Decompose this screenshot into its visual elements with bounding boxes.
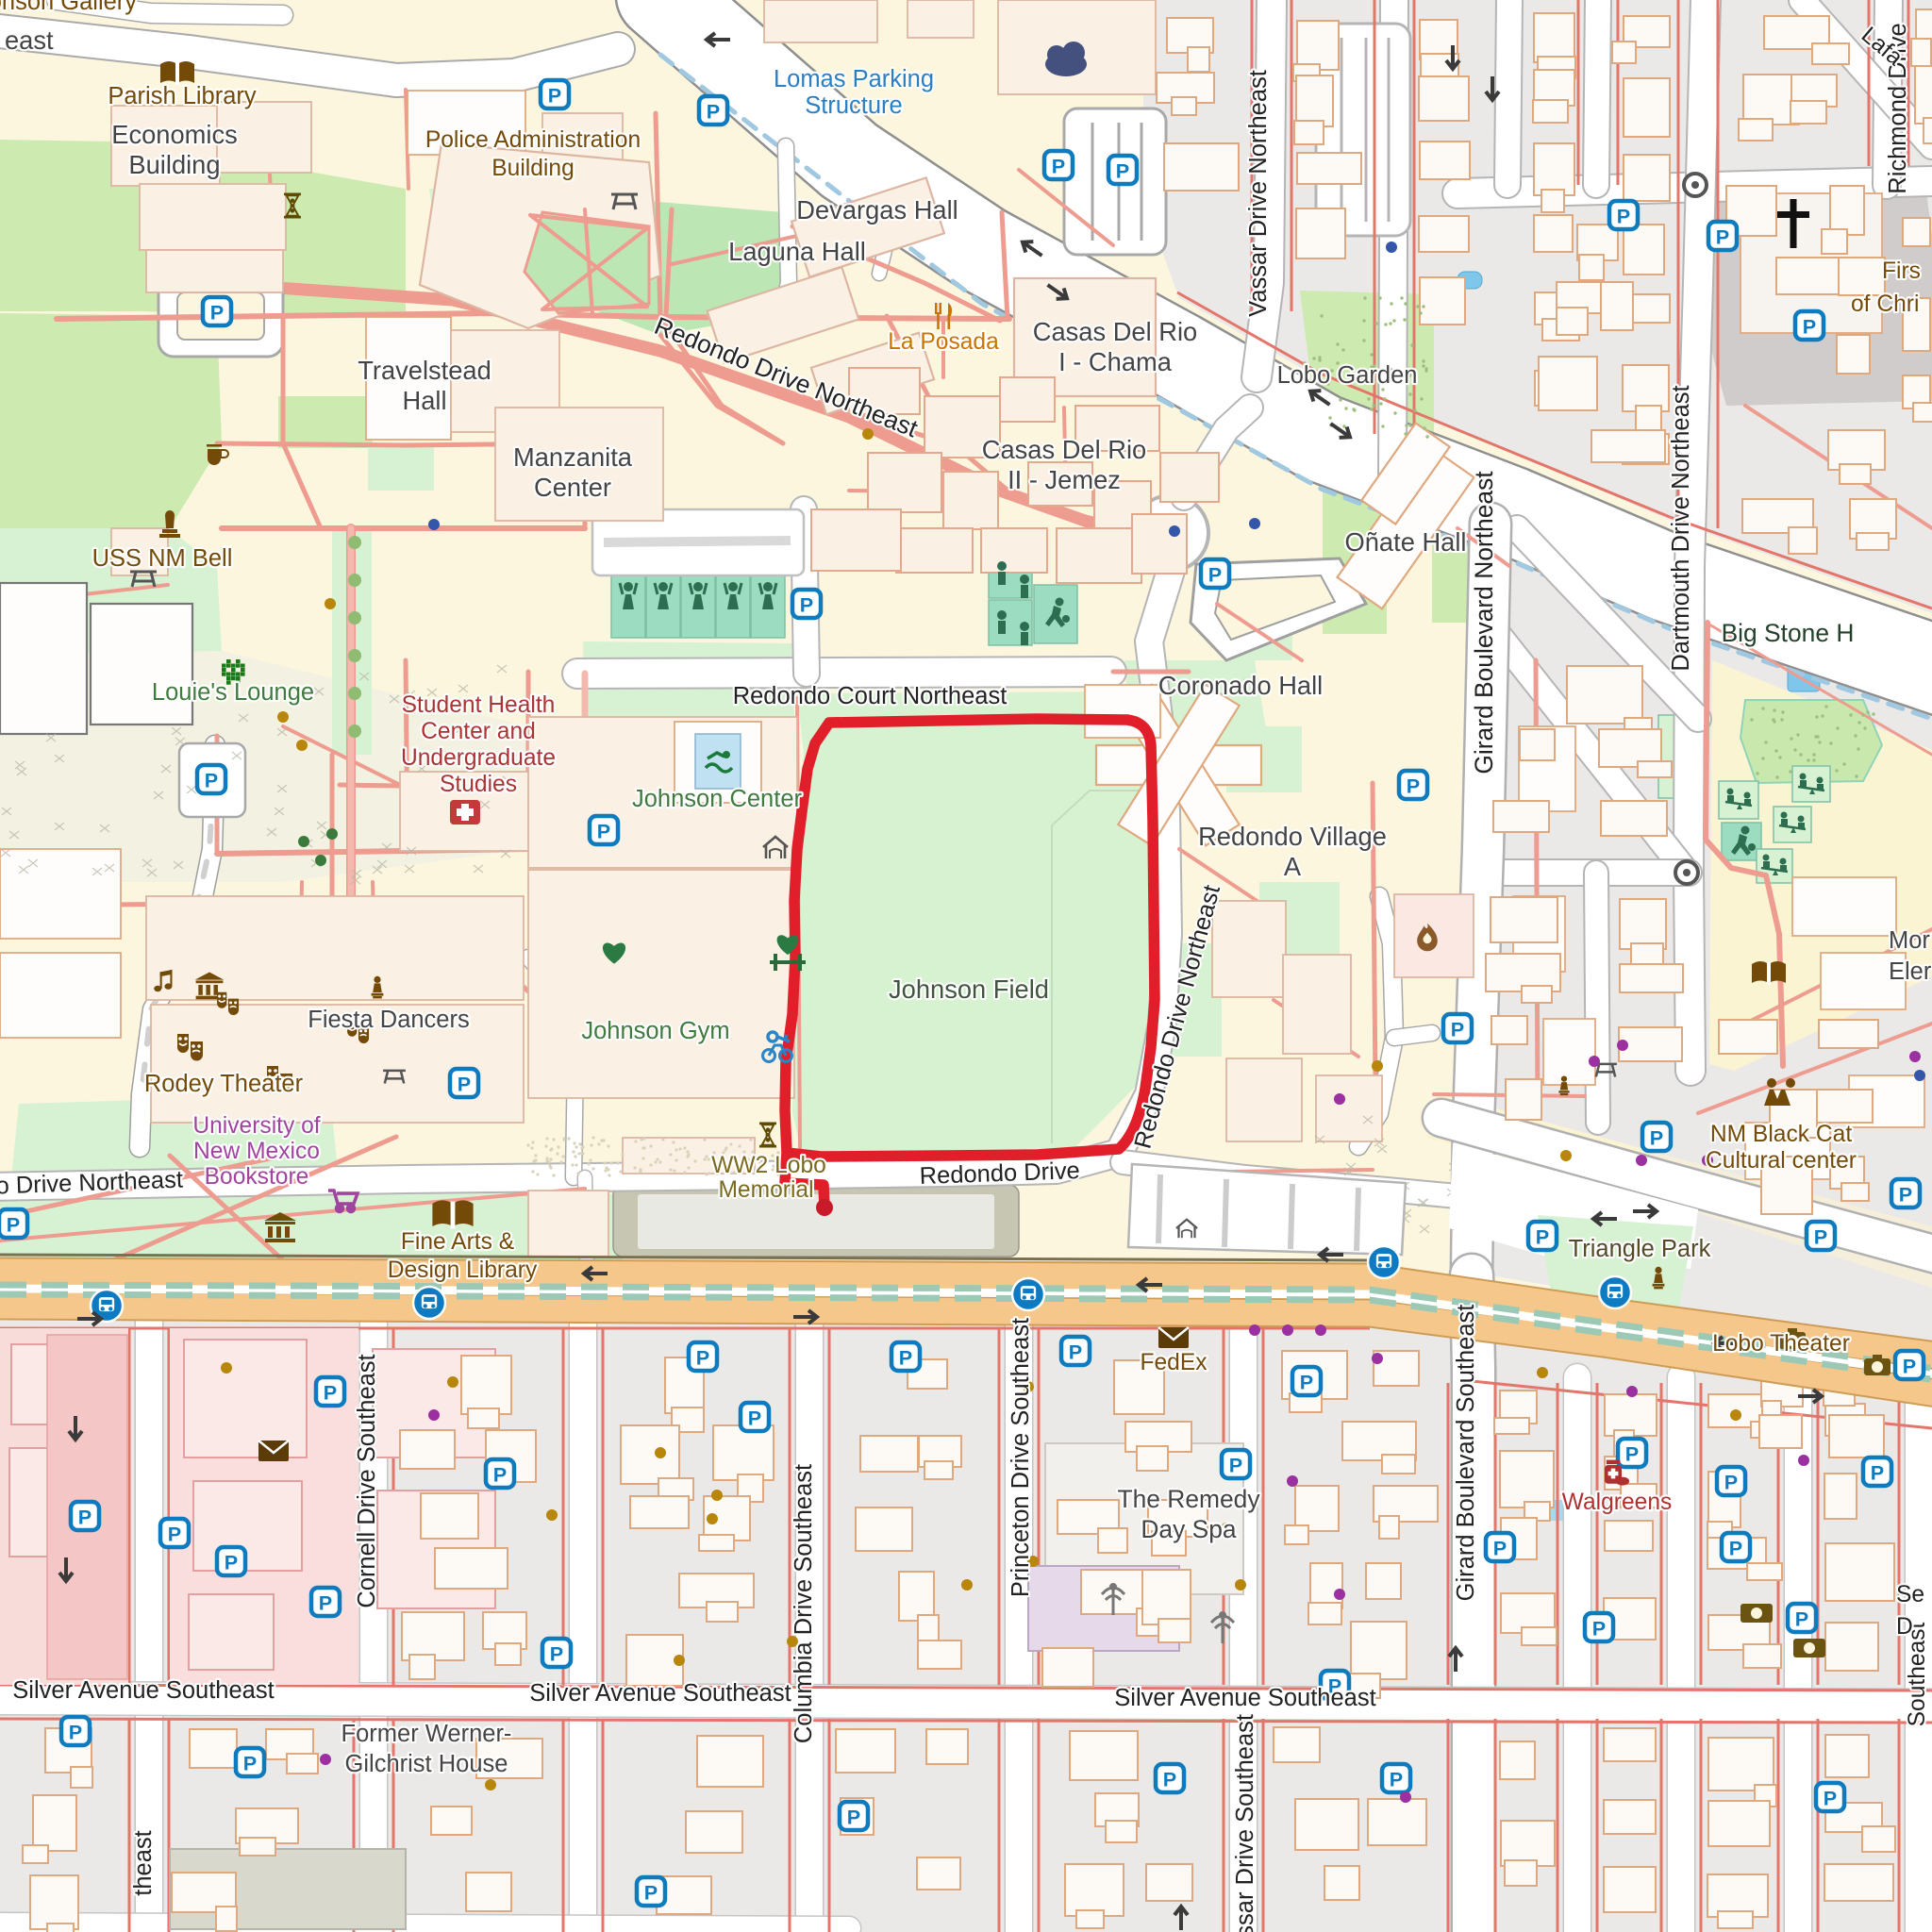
svg-text:P: P (1903, 1354, 1916, 1377)
svg-text:Girard Boulevard Southeast: Girard Boulevard Southeast (1453, 1305, 1479, 1602)
svg-text:D: D (1896, 1614, 1913, 1640)
svg-text:Jonson Gallery: Jonson Gallery (0, 0, 137, 15)
svg-text:P: P (1536, 1224, 1549, 1248)
svg-text:Lomas Parking: Lomas Parking (774, 66, 934, 92)
svg-text:Gilchrist House: Gilchrist House (345, 1751, 508, 1777)
svg-text:P: P (7, 1212, 20, 1236)
svg-text:Triangle Park: Triangle Park (1569, 1236, 1711, 1262)
svg-text:Former Werner-: Former Werner- (341, 1721, 512, 1747)
svg-text:Police Administration: Police Administration (425, 127, 641, 153)
svg-text:Travelstead: Travelstead (358, 356, 491, 385)
svg-text:P: P (1795, 1607, 1808, 1630)
svg-text:P: P (1407, 774, 1420, 797)
svg-text:Economics: Economics (111, 120, 238, 149)
svg-text:The Remedy: The Remedy (1117, 1485, 1260, 1513)
svg-text:Memorial: Memorial (718, 1177, 813, 1203)
svg-text:Fiesta Dancers: Fiesta Dancers (308, 1007, 469, 1033)
svg-text:Dartmouth Drive Northeast: Dartmouth Drive Northeast (1668, 385, 1694, 671)
svg-text:P: P (168, 1522, 181, 1545)
svg-text:P: P (1650, 1125, 1663, 1149)
svg-text:Building: Building (491, 156, 575, 181)
svg-text:P: P (548, 83, 561, 107)
svg-text:II - Jemez: II - Jemez (1008, 465, 1121, 494)
svg-text:USS NM Bell: USS NM Bell (92, 545, 233, 572)
svg-text:Firs: Firs (1882, 258, 1921, 284)
svg-text:P: P (458, 1072, 471, 1095)
svg-text:Big Stone H: Big Stone H (1722, 619, 1855, 647)
svg-text:P: P (1116, 158, 1129, 182)
svg-text:Eler: Eler (1889, 958, 1932, 985)
svg-text:P: P (707, 99, 720, 123)
svg-text:Walgreens: Walgreens (1562, 1490, 1673, 1515)
svg-text:Hall: Hall (402, 386, 446, 415)
svg-text:P: P (210, 300, 224, 324)
svg-text:P: P (1814, 1224, 1827, 1248)
svg-text:NM Black Cat: NM Black Cat (1710, 1122, 1852, 1147)
svg-text:Parish Library: Parish Library (108, 83, 257, 109)
svg-text:P: P (493, 1462, 507, 1486)
svg-text:Laguna Hall: Laguna Hall (728, 237, 866, 266)
svg-text:Girard Boulevard Northeast: Girard Boulevard Northeast (1470, 471, 1498, 774)
svg-text:Se: Se (1896, 1582, 1924, 1607)
svg-text:P: P (550, 1641, 563, 1665)
svg-text:P: P (324, 1380, 337, 1404)
svg-text:Johnson Field: Johnson Field (889, 974, 1049, 1004)
svg-text:P: P (899, 1345, 912, 1369)
svg-text:Studies: Studies (440, 772, 517, 797)
svg-text:Casas Del Rio: Casas Del Rio (982, 435, 1146, 464)
svg-text:P: P (319, 1591, 332, 1614)
svg-text:Silver Avenue Southeast: Silver Avenue Southeast (529, 1680, 791, 1707)
svg-text:Devargas Hall: Devargas Hall (796, 195, 958, 225)
svg-text:P: P (800, 592, 813, 616)
svg-text:Silver Avenue Southeast: Silver Avenue Southeast (12, 1677, 274, 1704)
svg-text:P: P (1208, 562, 1222, 586)
svg-text:I - Chama: I - Chama (1058, 347, 1173, 376)
svg-text:University of: University of (192, 1113, 320, 1139)
svg-text:P: P (1069, 1340, 1082, 1363)
svg-text:Student Health: Student Health (402, 692, 556, 718)
svg-text:Cultural center: Cultural center (1706, 1148, 1857, 1174)
svg-text:Lobo Garden: Lobo Garden (1277, 362, 1418, 389)
svg-text:of Chri: of Chri (1851, 291, 1919, 317)
svg-text:Cornell Drive Southeast: Cornell Drive Southeast (354, 1354, 380, 1607)
svg-text:P: P (748, 1406, 761, 1429)
svg-text:Undergraduate: Undergraduate (401, 745, 556, 771)
svg-text:Redondo Drive: Redondo Drive (919, 1158, 1080, 1190)
svg-text:P: P (1617, 204, 1630, 227)
svg-text:P: P (1451, 1017, 1464, 1041)
svg-text:Oñate Hall: Oñate Hall (1345, 527, 1467, 557)
svg-text:Rodey Theater: Rodey Theater (144, 1071, 304, 1097)
svg-text:Manzanita: Manzanita (513, 442, 633, 472)
svg-text:P: P (1724, 1470, 1738, 1493)
svg-text:New Mexico: New Mexico (193, 1139, 320, 1164)
svg-text:Center: Center (534, 473, 611, 502)
svg-text:P: P (1824, 1786, 1837, 1809)
svg-text:P: P (1592, 1616, 1606, 1640)
svg-text:Silver Avenue Southeast: Silver Avenue Southeast (1114, 1685, 1375, 1711)
svg-text:Louie's Lounge: Louie's Lounge (152, 679, 314, 706)
svg-text:Structure: Structure (805, 92, 902, 119)
svg-text:P: P (1625, 1441, 1639, 1465)
svg-text:A: A (1284, 852, 1302, 881)
svg-text:P: P (205, 768, 218, 791)
svg-text:Johnson Gym: Johnson Gym (581, 1018, 729, 1044)
svg-text:P: P (243, 1751, 257, 1774)
svg-text:Fine Arts &: Fine Arts & (401, 1229, 515, 1255)
svg-text:P: P (1300, 1370, 1313, 1393)
svg-text:Design Library: Design Library (388, 1257, 538, 1283)
svg-text:P: P (847, 1805, 860, 1828)
svg-text:Building: Building (128, 150, 220, 179)
svg-text:Day Spa: Day Spa (1141, 1515, 1237, 1543)
svg-text:FedEx: FedEx (1140, 1350, 1207, 1375)
svg-text:Redondo Village: Redondo Village (1198, 822, 1387, 851)
svg-text:Vassar Drive Northeast: Vassar Drive Northeast (1245, 70, 1272, 317)
svg-text:P: P (597, 819, 610, 842)
svg-text:Redondo Court Northeast: Redondo Court Northeast (733, 683, 1008, 709)
svg-text:theast: theast (130, 1830, 157, 1895)
svg-text:La Posada: La Posada (888, 329, 999, 355)
svg-text:P: P (1390, 1767, 1403, 1790)
svg-text:Center and: Center and (421, 719, 536, 744)
svg-text:P: P (225, 1550, 238, 1574)
svg-text:Casas Del Rio: Casas Del Rio (1033, 317, 1197, 346)
svg-text:Vassar Drive Southeast: Vassar Drive Southeast (1232, 1714, 1258, 1932)
svg-text:Bookstore: Bookstore (205, 1164, 309, 1190)
svg-text:Johnson Center: Johnson Center (632, 786, 803, 812)
svg-text:P: P (78, 1505, 92, 1528)
svg-text:P: P (1229, 1453, 1242, 1476)
svg-text:P: P (1052, 154, 1065, 177)
svg-text:P: P (644, 1880, 658, 1904)
svg-text:Princeton Drive Southeast: Princeton Drive Southeast (1008, 1318, 1034, 1597)
svg-text:P: P (1163, 1767, 1176, 1790)
svg-text:P: P (1716, 225, 1729, 248)
svg-text:P: P (1803, 314, 1816, 338)
svg-text:P: P (1871, 1460, 1884, 1484)
svg-text:P: P (1899, 1182, 1912, 1206)
svg-text:P: P (1729, 1536, 1742, 1559)
svg-text:east: east (5, 25, 54, 55)
svg-text:Lobo Theater: Lobo Theater (1712, 1331, 1850, 1357)
svg-text:P: P (69, 1720, 82, 1743)
svg-text:Columbia Drive Southeast: Columbia Drive Southeast (791, 1464, 817, 1743)
svg-text:P: P (1493, 1536, 1507, 1559)
svg-text:Coronado Hall: Coronado Hall (1158, 671, 1324, 700)
svg-text:P: P (696, 1345, 709, 1369)
svg-text:Mor: Mor (1889, 927, 1930, 954)
svg-text:WW2 Lobo: WW2 Lobo (711, 1153, 826, 1178)
